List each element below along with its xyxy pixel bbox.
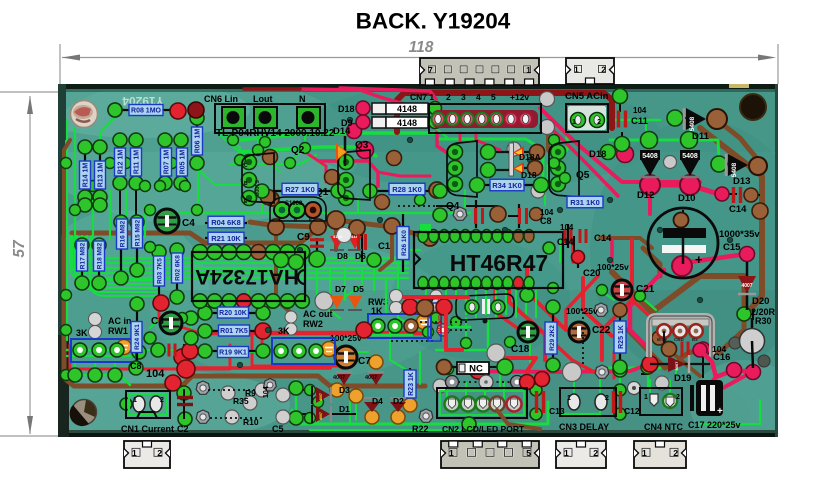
svg-text:C12: C12	[624, 406, 640, 416]
svg-text:4007: 4007	[741, 283, 752, 289]
svg-text:R23 1K: R23 1K	[408, 372, 415, 396]
svg-text:C17 220*25v: C17 220*25v	[688, 420, 741, 430]
svg-text:2: 2	[597, 119, 601, 126]
svg-text:104: 104	[146, 368, 165, 380]
svg-text:C14: C14	[594, 233, 612, 244]
svg-text:HA17324A: HA17324A	[195, 265, 299, 288]
svg-text:R17 M82: R17 M82	[80, 242, 87, 269]
svg-text:R20 10K: R20 10K	[219, 310, 247, 317]
svg-text:R22: R22	[412, 424, 429, 434]
svg-text:CN1 Current: CN1 Current	[121, 424, 174, 434]
svg-text:D2: D2	[393, 396, 404, 406]
svg-text:1: 1	[132, 448, 137, 458]
svg-text:5408: 5408	[682, 153, 698, 160]
svg-text:4007: 4007	[365, 375, 377, 381]
svg-text:Q5: Q5	[576, 170, 590, 181]
svg-text:C5: C5	[272, 424, 284, 434]
svg-text:R21 10K: R21 10K	[211, 234, 241, 243]
svg-text:R12 1M: R12 1M	[118, 150, 125, 175]
svg-text:D10: D10	[678, 193, 695, 204]
svg-text:2: 2	[605, 395, 609, 402]
svg-text:4148: 4148	[397, 118, 417, 128]
svg-text:R35: R35	[233, 396, 249, 406]
svg-text:CN4 NTC: CN4 NTC	[644, 422, 684, 432]
svg-text:C: C	[244, 163, 248, 169]
svg-text:1: 1	[133, 397, 137, 404]
svg-text:1: 1	[564, 448, 569, 458]
svg-text:D7: D7	[335, 284, 346, 294]
svg-text:1K: 1K	[371, 306, 383, 316]
svg-text:1: 1	[574, 64, 579, 74]
svg-text:D18: D18	[521, 170, 537, 180]
svg-text:C13: C13	[549, 406, 565, 416]
svg-text:Q4: Q4	[446, 201, 460, 212]
svg-text:5408: 5408	[689, 116, 696, 131]
svg-text:D11: D11	[692, 131, 710, 142]
svg-text:104: 104	[263, 386, 270, 398]
svg-text:D1: D1	[339, 404, 350, 414]
svg-text:Q2: Q2	[291, 145, 305, 156]
svg-text:D13: D13	[733, 176, 750, 187]
svg-text:R34 1K0: R34 1K0	[492, 181, 522, 190]
svg-text:R19 9K1: R19 9K1	[219, 350, 247, 357]
svg-text:57: 57	[11, 239, 28, 258]
svg-text:S1008: S1008	[253, 180, 259, 196]
svg-text:C14: C14	[729, 204, 747, 215]
svg-text:118: 118	[409, 39, 434, 56]
svg-text:R14 1M: R14 1M	[83, 163, 90, 188]
svg-text:R06 1M: R06 1M	[195, 129, 202, 154]
svg-text:R15 M82: R15 M82	[135, 219, 142, 246]
svg-text:104: 104	[560, 223, 574, 232]
svg-text:R25 1K: R25 1K	[618, 325, 625, 349]
svg-text:2: 2	[157, 448, 162, 458]
svg-text:5408: 5408	[731, 162, 738, 177]
svg-text:CN6 Lin: CN6 Lin	[204, 94, 238, 104]
svg-text:CBD: CBD	[674, 337, 684, 342]
svg-text:R18 M82: R18 M82	[97, 242, 104, 269]
svg-text:1: 1	[572, 119, 576, 126]
svg-text:R07 1M: R07 1M	[164, 150, 171, 175]
svg-text:D18A: D18A	[519, 152, 541, 162]
svg-text:R04 6K8: R04 6K8	[211, 218, 241, 227]
svg-text:104: 104	[633, 106, 647, 115]
svg-text:C15: C15	[723, 242, 741, 253]
svg-text:100*25v: 100*25v	[597, 262, 629, 272]
svg-text:D3: D3	[339, 385, 350, 395]
svg-text:1: 1	[449, 448, 454, 458]
svg-text:4148: 4148	[333, 234, 343, 239]
svg-text:7: 7	[428, 65, 433, 75]
svg-text:4007: 4007	[319, 393, 323, 401]
svg-text:E: E	[309, 217, 312, 222]
svg-text:D12: D12	[637, 190, 654, 201]
svg-text:3: 3	[461, 92, 466, 102]
svg-text:R13 1M: R13 1M	[98, 163, 105, 188]
svg-text:C20: C20	[583, 268, 600, 279]
svg-text:2: 2	[601, 64, 606, 74]
svg-text:TL-P04RHV14 2000.10.22: TL-P04RHV14 2000.10.22	[216, 128, 335, 139]
svg-text:D19: D19	[674, 373, 691, 384]
svg-text:BACK. Y19204: BACK. Y19204	[356, 9, 511, 34]
svg-text:CN2 LCD/LED PORT: CN2 LCD/LED PORT	[442, 424, 525, 434]
svg-text:100*25v: 100*25v	[566, 306, 598, 316]
svg-text:1: 1	[642, 448, 647, 458]
svg-text:1: 1	[567, 395, 571, 402]
svg-text:4007: 4007	[319, 412, 323, 420]
svg-text:RW2: RW2	[303, 319, 323, 329]
svg-text:RW1: RW1	[108, 326, 128, 336]
svg-text:4007: 4007	[333, 375, 345, 381]
svg-text:R29 2K2: R29 2K2	[549, 325, 556, 351]
svg-text:C14: C14	[557, 237, 574, 247]
svg-text:CN5 ACin: CN5 ACin	[565, 91, 609, 102]
svg-text:R02 6K8: R02 6K8	[175, 255, 182, 281]
svg-text:D6: D6	[355, 251, 366, 261]
svg-text:C22: C22	[592, 325, 611, 336]
svg-text:C3: C3	[151, 316, 164, 327]
svg-text:D14: D14	[333, 126, 351, 137]
svg-text:R27 1K0: R27 1K0	[285, 185, 315, 194]
svg-text:2: 2	[676, 394, 680, 401]
svg-text:Bx: Bx	[692, 337, 698, 342]
svg-text:+: +	[717, 406, 723, 417]
svg-text:R08 1MO: R08 1MO	[131, 108, 162, 115]
svg-text:R03 7K5: R03 7K5	[157, 258, 164, 284]
svg-text:3K: 3K	[278, 326, 290, 336]
svg-text:R16 M82: R16 M82	[120, 220, 127, 247]
svg-text:D4: D4	[372, 396, 383, 406]
svg-text:2: 2	[673, 448, 678, 458]
svg-text:5408: 5408	[642, 153, 658, 160]
svg-text:C4: C4	[182, 218, 195, 229]
svg-text:AC in: AC in	[108, 316, 132, 326]
svg-text:R30: R30	[755, 316, 772, 326]
svg-text:4007: 4007	[674, 361, 679, 371]
svg-text:C8: C8	[130, 361, 142, 371]
svg-text:C9: C9	[297, 232, 310, 243]
svg-text:4148: 4148	[397, 104, 417, 114]
svg-text:R24 9K1: R24 9K1	[134, 324, 141, 350]
svg-text:2: 2	[446, 92, 451, 102]
svg-text:C8: C8	[540, 216, 552, 226]
svg-text:1: 1	[644, 394, 648, 401]
svg-text:C1: C1	[378, 241, 391, 252]
svg-text:B: B	[244, 181, 248, 187]
svg-text:D8: D8	[337, 251, 348, 261]
svg-text:C16: C16	[713, 352, 730, 363]
svg-text:CN7 1: CN7 1	[410, 92, 434, 102]
svg-text:CN3 DELAY: CN3 DELAY	[559, 422, 609, 432]
svg-text:C11: C11	[631, 116, 649, 127]
svg-text:C21: C21	[636, 284, 655, 295]
svg-text:R05 1M: R05 1M	[180, 150, 187, 175]
svg-text:5: 5	[491, 92, 496, 102]
svg-text:1000*35v: 1000*35v	[719, 229, 760, 240]
svg-text:R31 1K0: R31 1K0	[570, 198, 600, 207]
svg-text:Lout: Lout	[253, 94, 273, 104]
svg-text:5: 5	[526, 448, 531, 458]
svg-text:R01 7K5: R01 7K5	[220, 328, 248, 335]
svg-text:2: 2	[593, 448, 598, 458]
svg-text:D18: D18	[589, 149, 606, 160]
svg-text:R26 1K0: R26 1K0	[401, 230, 408, 256]
svg-text:4: 4	[476, 92, 481, 102]
svg-text:3K: 3K	[76, 328, 88, 338]
svg-text:C7: C7	[358, 356, 371, 367]
svg-text:D5: D5	[353, 284, 364, 294]
svg-text:HT46R47: HT46R47	[450, 250, 548, 276]
svg-text:N: N	[299, 94, 306, 104]
svg-text:1: 1	[526, 65, 531, 75]
svg-text:+: +	[695, 252, 703, 267]
svg-text:D18: D18	[338, 104, 355, 114]
svg-text:Q3: Q3	[355, 140, 369, 151]
svg-text:C18: C18	[511, 344, 530, 355]
svg-text:+12v: +12v	[510, 92, 529, 102]
svg-text:NC: NC	[469, 364, 483, 375]
svg-text:R28 1K0: R28 1K0	[392, 185, 422, 194]
svg-text:S1008: S1008	[285, 201, 303, 207]
svg-text:2: 2	[160, 397, 164, 404]
svg-text:D20: D20	[752, 296, 769, 307]
svg-text:C2: C2	[177, 424, 189, 434]
svg-text:R11 1M: R11 1M	[134, 150, 141, 174]
svg-text:AC out: AC out	[303, 309, 333, 319]
